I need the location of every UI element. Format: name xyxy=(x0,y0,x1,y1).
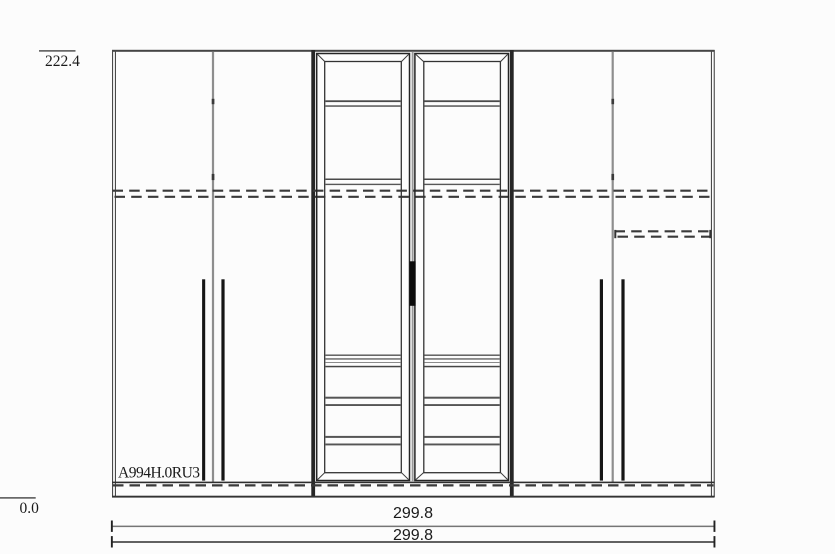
svg-text:A994H.0RU3: A994H.0RU3 xyxy=(118,465,200,482)
svg-text:0.0: 0.0 xyxy=(20,500,40,517)
svg-text:299.8: 299.8 xyxy=(393,527,433,544)
svg-text:222.4: 222.4 xyxy=(45,53,80,70)
svg-text:299.8: 299.8 xyxy=(393,505,433,522)
